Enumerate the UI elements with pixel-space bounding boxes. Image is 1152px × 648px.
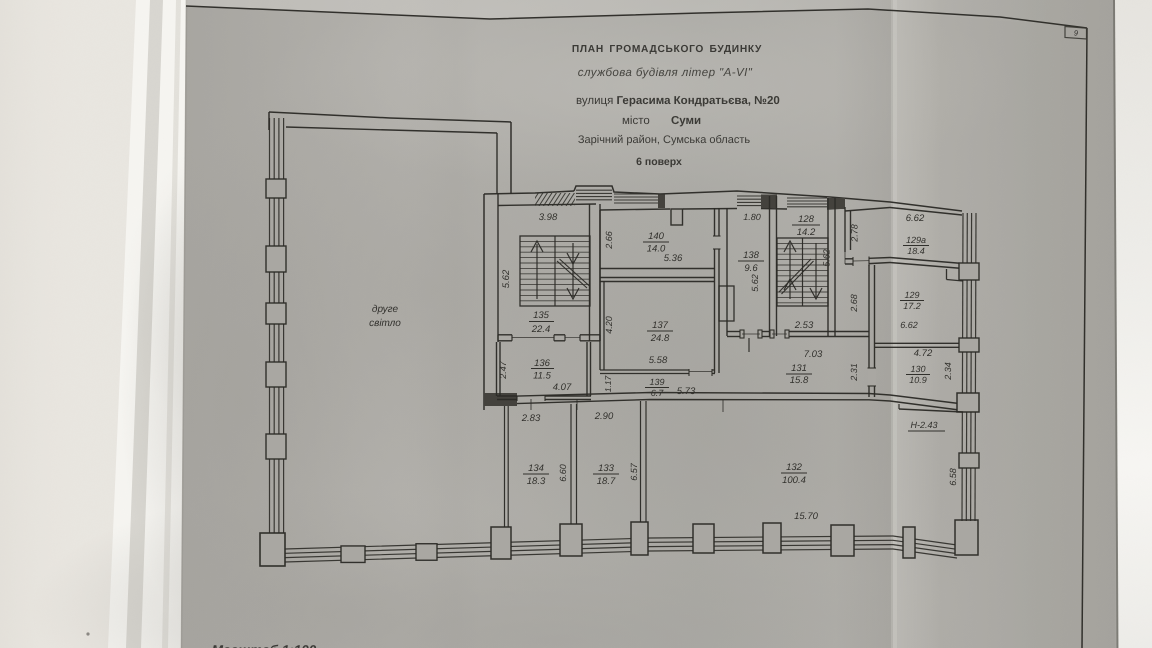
svg-text:135: 135	[533, 310, 550, 321]
svg-text:137: 137	[652, 320, 669, 331]
svg-text:друге: друге	[372, 304, 399, 315]
svg-text:1.17: 1.17	[603, 375, 613, 392]
svg-text:службова будівля ліmер "А-VI": службова будівля ліmер "А-VI"	[578, 66, 753, 79]
svg-text:130: 130	[910, 364, 925, 374]
svg-text:100.4: 100.4	[782, 475, 806, 486]
svg-text:138: 138	[743, 250, 760, 261]
svg-text:9.6: 9.6	[744, 263, 758, 274]
svg-text:139: 139	[649, 377, 664, 387]
svg-text:6 поверх: 6 поверх	[636, 156, 682, 168]
svg-text:131: 131	[791, 363, 807, 374]
svg-text:134: 134	[528, 463, 544, 474]
svg-text:129: 129	[904, 290, 919, 300]
svg-text:140: 140	[648, 231, 665, 242]
svg-text:2.53: 2.53	[794, 320, 814, 331]
svg-text:6.60: 6.60	[558, 464, 568, 482]
svg-text:1.80: 1.80	[743, 212, 761, 222]
svg-text:22.4: 22.4	[531, 324, 551, 335]
svg-text:6.62: 6.62	[900, 320, 918, 330]
svg-text:5.62: 5.62	[750, 274, 760, 292]
svg-text:7.03: 7.03	[804, 349, 823, 360]
svg-text:світло: світло	[369, 318, 401, 329]
svg-text:5.73: 5.73	[677, 386, 696, 397]
svg-text:5.62: 5.62	[822, 249, 832, 267]
svg-text:6.57: 6.57	[629, 462, 639, 481]
svg-text:ПЛАН ГРОМАДСЬКОГО БУДИНКУ: ПЛАН ГРОМАДСЬКОГО БУДИНКУ	[572, 44, 762, 55]
svg-text:2.68: 2.68	[849, 294, 859, 313]
svg-text:24.8: 24.8	[650, 333, 670, 344]
svg-text:18.7: 18.7	[597, 476, 616, 487]
svg-text:2.78: 2.78	[850, 224, 860, 243]
svg-text:136: 136	[534, 358, 551, 369]
svg-text:15.8: 15.8	[790, 375, 809, 386]
svg-text:129а: 129а	[906, 235, 926, 245]
svg-text:Зарічний район, Сумська област: Зарічний район, Сумська область	[578, 134, 750, 146]
svg-text:133: 133	[598, 463, 615, 474]
svg-text:132: 132	[786, 462, 803, 473]
svg-text:Н-2.43: Н-2.43	[910, 420, 937, 430]
svg-text:6.58: 6.58	[948, 468, 958, 486]
svg-text:6.7: 6.7	[651, 388, 665, 398]
svg-text:3.98: 3.98	[539, 212, 558, 223]
svg-text:15.70: 15.70	[794, 511, 818, 522]
svg-text:4.72: 4.72	[914, 348, 933, 359]
svg-text:4.20: 4.20	[604, 316, 614, 334]
svg-text:5.36: 5.36	[664, 253, 683, 264]
svg-text:5.62: 5.62	[501, 269, 512, 288]
svg-text:10.9: 10.9	[909, 375, 927, 385]
svg-text:14.2: 14.2	[797, 227, 816, 238]
svg-text:4.07: 4.07	[553, 382, 572, 393]
svg-text:18.3: 18.3	[527, 476, 546, 487]
svg-text:6.62: 6.62	[906, 213, 925, 224]
svg-text:11.5: 11.5	[533, 371, 552, 382]
svg-text:18.4: 18.4	[907, 246, 925, 256]
svg-text:2.31: 2.31	[849, 363, 859, 382]
svg-text:2.66: 2.66	[604, 231, 614, 250]
svg-text:2.83: 2.83	[521, 413, 541, 424]
svg-text:2.90: 2.90	[594, 411, 614, 422]
svg-text:128: 128	[798, 214, 815, 225]
svg-text:2.47: 2.47	[498, 360, 508, 380]
svg-text:вулиця Герасима Кондратьєва, №: вулиця Герасима Кондратьєва, №20	[576, 95, 780, 107]
svg-text:Масштаб 1:100: Масштаб 1:100	[212, 643, 317, 648]
svg-text:17.2: 17.2	[903, 301, 921, 311]
svg-text:5.58: 5.58	[649, 355, 668, 366]
svg-text:2.34: 2.34	[943, 362, 953, 381]
